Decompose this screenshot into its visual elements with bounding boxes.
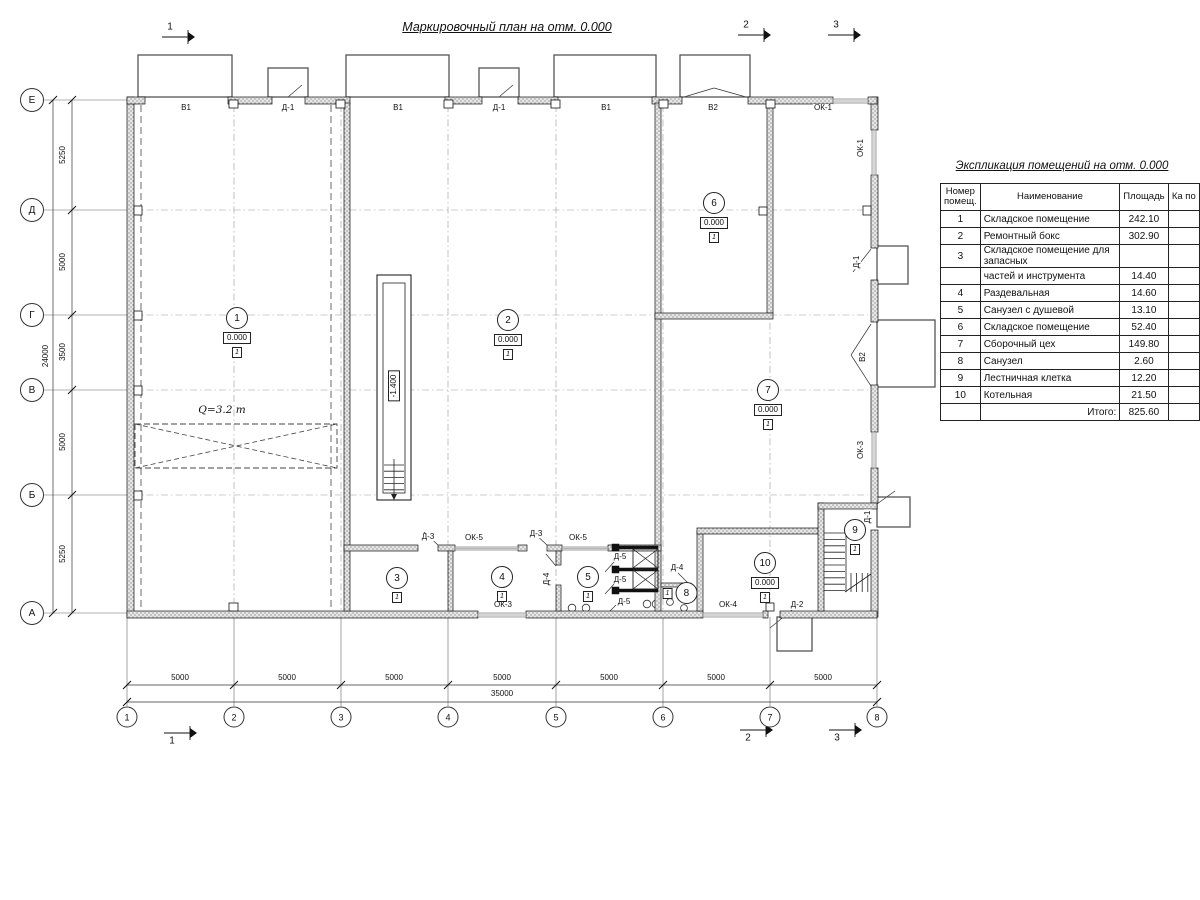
grid-row-bubble: Г — [20, 303, 44, 327]
room-schedule-table: Номер помещ. Наименование Площадь Ка по … — [940, 183, 1200, 421]
table-row: 5Санузел с душевой13.10 — [941, 302, 1200, 319]
cell-room-area: 13.10 — [1120, 302, 1168, 319]
mark-label: В2 — [707, 104, 719, 112]
mark-label: ОК-5 — [464, 534, 484, 542]
dimension-label: 3500 — [59, 342, 67, 362]
cell-room-number: 1 — [941, 211, 981, 228]
dimension-label: 5000 — [384, 674, 404, 682]
cell-room-number: 4 — [941, 285, 981, 302]
table-row: 1Складское помещение242.10 — [941, 211, 1200, 228]
room-marker: 91 — [844, 519, 866, 555]
cell-room-number: 10 — [941, 387, 981, 404]
mark-label: Д-1 — [281, 104, 296, 112]
cell-room-name: Ремонтный бокс — [980, 228, 1120, 245]
section-mark-label: 3 — [832, 20, 840, 31]
table-row: 6Складское помещение52.40 — [941, 319, 1200, 336]
grid-row-bubble: А — [20, 601, 44, 625]
dimension-label: 5000 — [706, 674, 726, 682]
dimension-label: 5000 — [813, 674, 833, 682]
floor-type-mark: 1 — [760, 592, 770, 603]
mark-label: В2 — [859, 351, 867, 363]
section-mark-label: 3 — [833, 733, 841, 744]
room-number-bubble: 2 — [497, 309, 519, 331]
cell-room-name: Санузел — [980, 353, 1120, 370]
grid-col-bubble: 8 — [867, 707, 888, 728]
elevation-mark: 0.000 — [751, 577, 779, 589]
cell-room-area: 825.60 — [1120, 404, 1168, 421]
cell-room-number — [941, 404, 981, 421]
grid-row-bubble: Б — [20, 483, 44, 507]
dimension-label: 35000 — [490, 690, 514, 698]
mark-label: Д-5 — [613, 576, 628, 584]
cell-room-name: Раздевальная — [980, 285, 1120, 302]
cell-room-area: 14.60 — [1120, 285, 1168, 302]
dimension-label: 5000 — [59, 432, 67, 452]
cell-room-name: Итого: — [980, 404, 1120, 421]
room-number-bubble: 9 — [844, 519, 866, 541]
mark-label: Д-4 — [543, 572, 551, 587]
cell-room-name: Котельная — [980, 387, 1120, 404]
mark-label: Д-1 — [492, 104, 507, 112]
dimension-label: 5250 — [59, 145, 67, 165]
floor-type-mark: 1 — [850, 544, 860, 555]
cell-room-name: частей и инструмента — [980, 268, 1120, 285]
room-number-bubble: 1 — [226, 307, 248, 329]
floor-type-mark: 1 — [232, 347, 242, 358]
cell-room-number — [941, 268, 981, 285]
mark-label: ОК-5 — [568, 534, 588, 542]
cell-room-number: 6 — [941, 319, 981, 336]
plan-title: Маркировочный план на отм. 0.000 — [402, 20, 611, 34]
mark-label: Д-4 — [670, 564, 685, 572]
mark-label: ОК-3 — [857, 440, 865, 460]
cell-extra — [1168, 228, 1199, 245]
room-marker: 20.0001 — [494, 309, 522, 360]
room-marker: 31 — [386, 567, 408, 603]
section-mark-label: 2 — [744, 733, 752, 744]
section-mark-label: 2 — [742, 20, 750, 31]
dimension-label: 5000 — [59, 252, 67, 272]
mark-label: ОК-1 — [857, 138, 865, 158]
dimension-label: 5000 — [492, 674, 512, 682]
dimension-label: 5250 — [59, 544, 67, 564]
room-marker: 100.0001 — [751, 552, 779, 603]
grid-col-bubble: 6 — [653, 707, 674, 728]
table-row: 8Санузел2.60 — [941, 353, 1200, 370]
mark-label: ОК-1 — [813, 104, 833, 112]
room-marker: 10.0001 — [223, 307, 251, 358]
cell-room-area: 242.10 — [1120, 211, 1168, 228]
grid-row-bubble: В — [20, 378, 44, 402]
grid-col-bubble: 4 — [438, 707, 459, 728]
cell-extra — [1168, 302, 1199, 319]
cell-room-area: 14.40 — [1120, 268, 1168, 285]
cell-extra — [1168, 211, 1199, 228]
cell-extra — [1168, 268, 1199, 285]
drawing-sheet: Маркировочный план на отм. 0.000 Эксплик… — [0, 0, 1200, 900]
cell-room-number: 7 — [941, 336, 981, 353]
room-number-bubble: 3 — [386, 567, 408, 589]
dimension-label: 5000 — [599, 674, 619, 682]
mark-label: Д-5 — [617, 598, 632, 606]
floor-type-mark: 1 — [663, 588, 673, 599]
cell-room-name: Санузел с душевой — [980, 302, 1120, 319]
dimension-label: 5000 — [170, 674, 190, 682]
mark-label: ОК-4 — [718, 601, 738, 609]
section-mark-label: 1 — [166, 22, 174, 33]
room-marker: 60.0001 — [700, 192, 728, 243]
room-number-bubble: 10 — [754, 552, 776, 574]
mark-label: В1 — [392, 104, 404, 112]
cell-room-number: 8 — [941, 353, 981, 370]
cell-extra — [1168, 387, 1199, 404]
table-row: 2Ремонтный бокс302.90 — [941, 228, 1200, 245]
room-number-bubble: 5 — [577, 566, 599, 588]
cell-room-number: 2 — [941, 228, 981, 245]
cell-room-area: 149.80 — [1120, 336, 1168, 353]
mark-label: В1 — [600, 104, 612, 112]
dimension-label: 5000 — [277, 674, 297, 682]
cell-extra — [1168, 245, 1199, 268]
cell-room-name: Сборочный цех — [980, 336, 1120, 353]
table-row: 9Лестничная клетка12.20 — [941, 370, 1200, 387]
cell-extra — [1168, 404, 1199, 421]
table-row: 3Складское помещение для запасных — [941, 245, 1200, 268]
room-marker: 51 — [577, 566, 599, 602]
grid-row-bubble: Д — [20, 198, 44, 222]
dimension-label: 24000 — [42, 344, 50, 368]
cell-extra — [1168, 370, 1199, 387]
room-marker: 18 — [663, 582, 698, 604]
table-row: 7Сборочный цех149.80 — [941, 336, 1200, 353]
plan-linework — [0, 0, 1200, 900]
floor-type-mark: 1 — [503, 349, 513, 360]
crane-capacity-label: Q=3.2 т — [198, 404, 245, 416]
cell-room-area: 21.50 — [1120, 387, 1168, 404]
room-marker: 70.0001 — [754, 379, 782, 430]
room-number-bubble: 6 — [703, 192, 725, 214]
room-number-bubble: 7 — [757, 379, 779, 401]
cell-room-name: Складское помещение для запасных — [980, 245, 1120, 268]
elevation-mark: 0.000 — [223, 332, 251, 344]
floor-type-mark: 1 — [709, 232, 719, 243]
floor-type-mark: 1 — [583, 591, 593, 602]
cell-room-area: 302.90 — [1120, 228, 1168, 245]
table-row: 10Котельная21.50 — [941, 387, 1200, 404]
floor-type-mark: 1 — [497, 591, 507, 602]
cell-room-name: Складское помещение — [980, 211, 1120, 228]
cell-room-area — [1120, 245, 1168, 268]
cell-room-number: 5 — [941, 302, 981, 319]
elevation-mark: 0.000 — [754, 404, 782, 416]
grid-col-bubble: 2 — [224, 707, 245, 728]
col-header-area: Площадь — [1120, 184, 1168, 211]
cell-room-area: 2.60 — [1120, 353, 1168, 370]
mark-label: Д-1 — [853, 255, 861, 270]
room-number-bubble: 4 — [491, 566, 513, 588]
elevation-mark: 0.000 — [700, 217, 728, 229]
cell-room-name: Лестничная клетка — [980, 370, 1120, 387]
mark-label: В1 — [180, 104, 192, 112]
mark-label: Д-5 — [613, 553, 628, 561]
mark-label: Д-2 — [790, 601, 805, 609]
room-number-bubble: 8 — [675, 582, 697, 604]
mark-label: Д-3 — [529, 530, 544, 538]
section-mark-label: 1 — [168, 736, 176, 747]
cell-extra — [1168, 336, 1199, 353]
table-title: Экспликация помещений на отм. 0.000 — [956, 160, 1169, 172]
table-row: Итого:825.60 — [941, 404, 1200, 421]
room-marker: 41 — [491, 566, 513, 602]
elevation-mark: 0.000 — [494, 334, 522, 346]
cell-extra — [1168, 353, 1199, 370]
col-header-number: Номер помещ. — [941, 184, 981, 211]
floor-type-mark: 1 — [392, 592, 402, 603]
cell-room-area: 12.20 — [1120, 370, 1168, 387]
mark-label: ОК-3 — [493, 601, 513, 609]
table-row: 4Раздевальная14.60 — [941, 285, 1200, 302]
pit-elevation-label: -1.400 — [388, 371, 400, 402]
grid-col-bubble: 5 — [546, 707, 567, 728]
mark-label: Д-3 — [421, 533, 436, 541]
cell-extra — [1168, 285, 1199, 302]
cell-room-name: Складское помещение — [980, 319, 1120, 336]
grid-col-bubble: 1 — [117, 707, 138, 728]
cell-room-number: 3 — [941, 245, 981, 268]
cell-room-number: 9 — [941, 370, 981, 387]
cell-extra — [1168, 319, 1199, 336]
cell-room-area: 52.40 — [1120, 319, 1168, 336]
col-header-extra: Ка по — [1168, 184, 1199, 211]
col-header-name: Наименование — [980, 184, 1120, 211]
table-row: частей и инструмента14.40 — [941, 268, 1200, 285]
grid-col-bubble: 7 — [760, 707, 781, 728]
grid-row-bubble: Е — [20, 88, 44, 112]
grid-col-bubble: 3 — [331, 707, 352, 728]
floor-type-mark: 1 — [763, 419, 773, 430]
